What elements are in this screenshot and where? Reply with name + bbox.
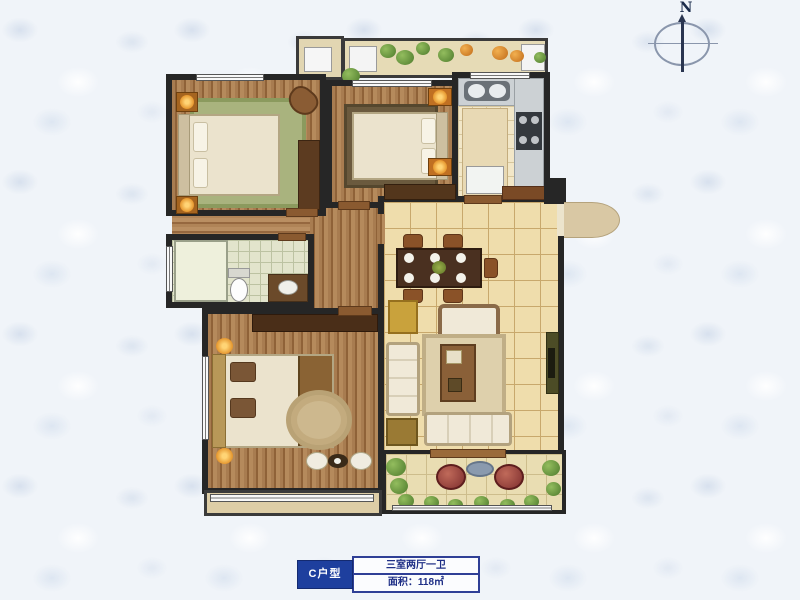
- round-rug: [286, 390, 352, 450]
- toilet-icon: [228, 268, 250, 278]
- plant-icon: [416, 42, 430, 55]
- unit-badge-label: C户型: [298, 561, 352, 588]
- layout-text: 三室两厅一卫: [354, 558, 478, 573]
- entry-door-swing-arc: [564, 202, 620, 238]
- dining-chair: [443, 234, 463, 248]
- window: [166, 246, 173, 292]
- compass: N: [648, 0, 728, 80]
- flower-icon: [510, 50, 524, 62]
- floor-lamp-table: [388, 300, 418, 334]
- planter-oval: [466, 461, 494, 477]
- lamp-icon: [180, 95, 194, 109]
- dresser: [384, 184, 456, 200]
- balcony-door-opening: [430, 449, 506, 458]
- sink-basin: [468, 84, 485, 98]
- hallway: [310, 208, 384, 310]
- plant-icon: [396, 50, 414, 65]
- pillow: [193, 158, 208, 188]
- dining-chair: [443, 289, 463, 303]
- plant-icon: [546, 482, 561, 496]
- flower-icon: [460, 44, 473, 56]
- window: [352, 80, 432, 87]
- pillow: [421, 118, 436, 144]
- table-item: [446, 350, 462, 364]
- flower-icon: [492, 46, 508, 60]
- window: [196, 74, 264, 81]
- plates: [404, 253, 414, 263]
- pillow: [230, 362, 256, 382]
- area-text: 面积：118㎡: [354, 575, 478, 591]
- tray-dot: [334, 458, 341, 464]
- burner: [519, 116, 527, 124]
- dining-chair: [484, 258, 498, 278]
- plant-icon: [542, 460, 560, 476]
- ac-unit-icon: [304, 47, 332, 72]
- window: [392, 505, 552, 511]
- burner: [531, 116, 539, 124]
- tv-icon: [548, 348, 555, 378]
- dresser: [252, 314, 378, 332]
- unit-badge: C户型: [297, 560, 353, 589]
- window: [210, 494, 374, 502]
- sink-basin: [489, 84, 506, 98]
- wardrobe: [298, 140, 320, 210]
- lamp-icon: [216, 448, 233, 464]
- compass-needle-tip: [678, 14, 686, 22]
- door-opening: [464, 195, 502, 204]
- loveseat: [424, 412, 512, 446]
- headboard: [178, 114, 190, 196]
- stool: [306, 452, 328, 470]
- window: [470, 72, 530, 79]
- lamp-icon: [180, 198, 194, 212]
- window: [202, 356, 209, 440]
- fridge-icon: [466, 166, 504, 194]
- stool: [350, 452, 372, 470]
- table-item: [448, 378, 462, 392]
- lamp-icon: [433, 160, 447, 174]
- dining-chair: [403, 234, 423, 248]
- shower: [174, 240, 228, 302]
- flower-pot: [494, 464, 524, 490]
- sofa-long: [386, 342, 420, 416]
- compass-needle-icon: [681, 20, 684, 72]
- burner: [519, 136, 527, 144]
- plant-icon: [380, 44, 396, 58]
- plant-icon: [438, 48, 454, 62]
- lamp-icon: [433, 90, 447, 104]
- toilet-bowl: [230, 278, 248, 302]
- door-opening: [286, 208, 318, 217]
- floor-plan: N 三室两厅一卫 面积：118㎡ C户型: [0, 0, 800, 600]
- hall-opening: [377, 214, 385, 244]
- headboard: [212, 354, 226, 448]
- plant-icon: [386, 458, 406, 476]
- entry-cabinet: [502, 186, 546, 200]
- pillow: [193, 122, 208, 152]
- wall-jog: [544, 178, 566, 204]
- plant-icon: [534, 52, 546, 63]
- pillow: [230, 398, 256, 418]
- wash-basin-icon: [278, 280, 298, 295]
- plant-icon: [390, 478, 408, 494]
- door-opening: [338, 306, 372, 316]
- flower-pot: [436, 464, 466, 490]
- burner: [531, 136, 539, 144]
- lamp-icon: [216, 338, 233, 354]
- centerpiece: [432, 261, 446, 274]
- door-opening: [338, 201, 370, 210]
- side-chest: [386, 418, 418, 446]
- door-opening: [278, 233, 306, 241]
- info-plate: 三室两厅一卫 面积：118㎡ C户型: [294, 553, 484, 595]
